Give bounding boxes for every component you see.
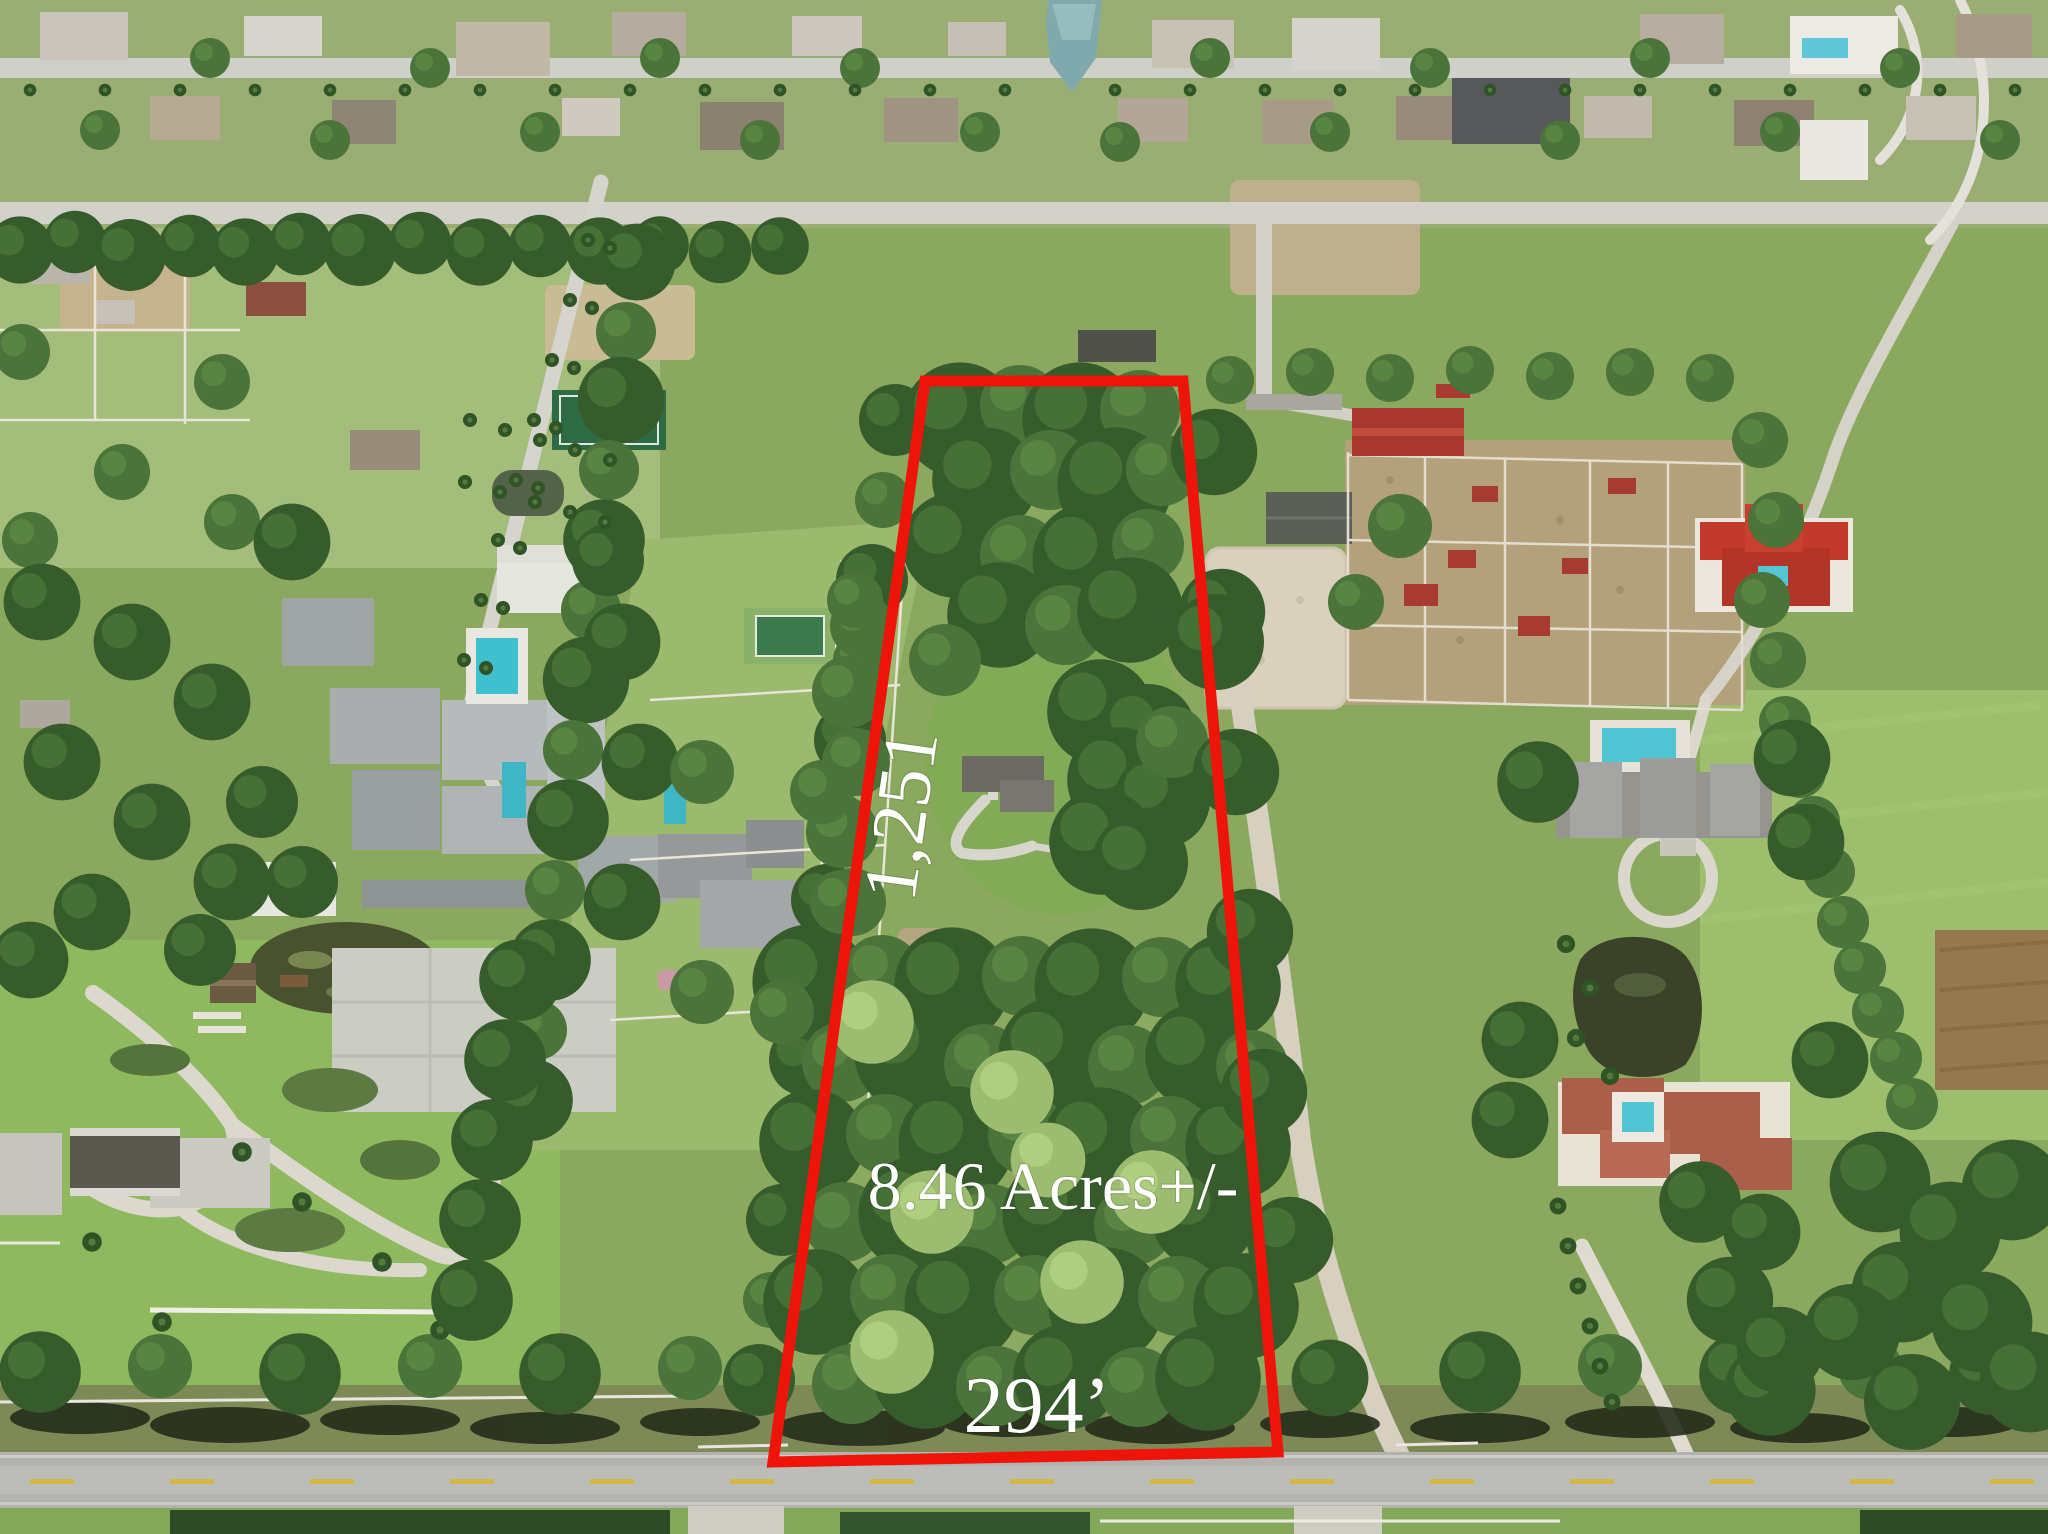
swimming-pool	[1622, 1102, 1654, 1132]
center-line-dashes	[30, 1479, 2034, 1484]
swimming-pool	[1602, 728, 1676, 762]
white-wall	[150, 1310, 440, 1312]
tennis-court	[756, 616, 824, 656]
frontage-road	[0, 1452, 2048, 1534]
aerial-photo: 1,251 8.46 Acres+/- 294’	[0, 0, 2048, 1534]
frontage-label: 294’	[964, 1362, 1111, 1450]
pavilion-house	[70, 1128, 180, 1196]
acreage-label: 8.46 Acres+/-	[868, 1148, 1239, 1224]
aerial-scene: 1,251 8.46 Acres+/- 294’	[0, 0, 2048, 1534]
